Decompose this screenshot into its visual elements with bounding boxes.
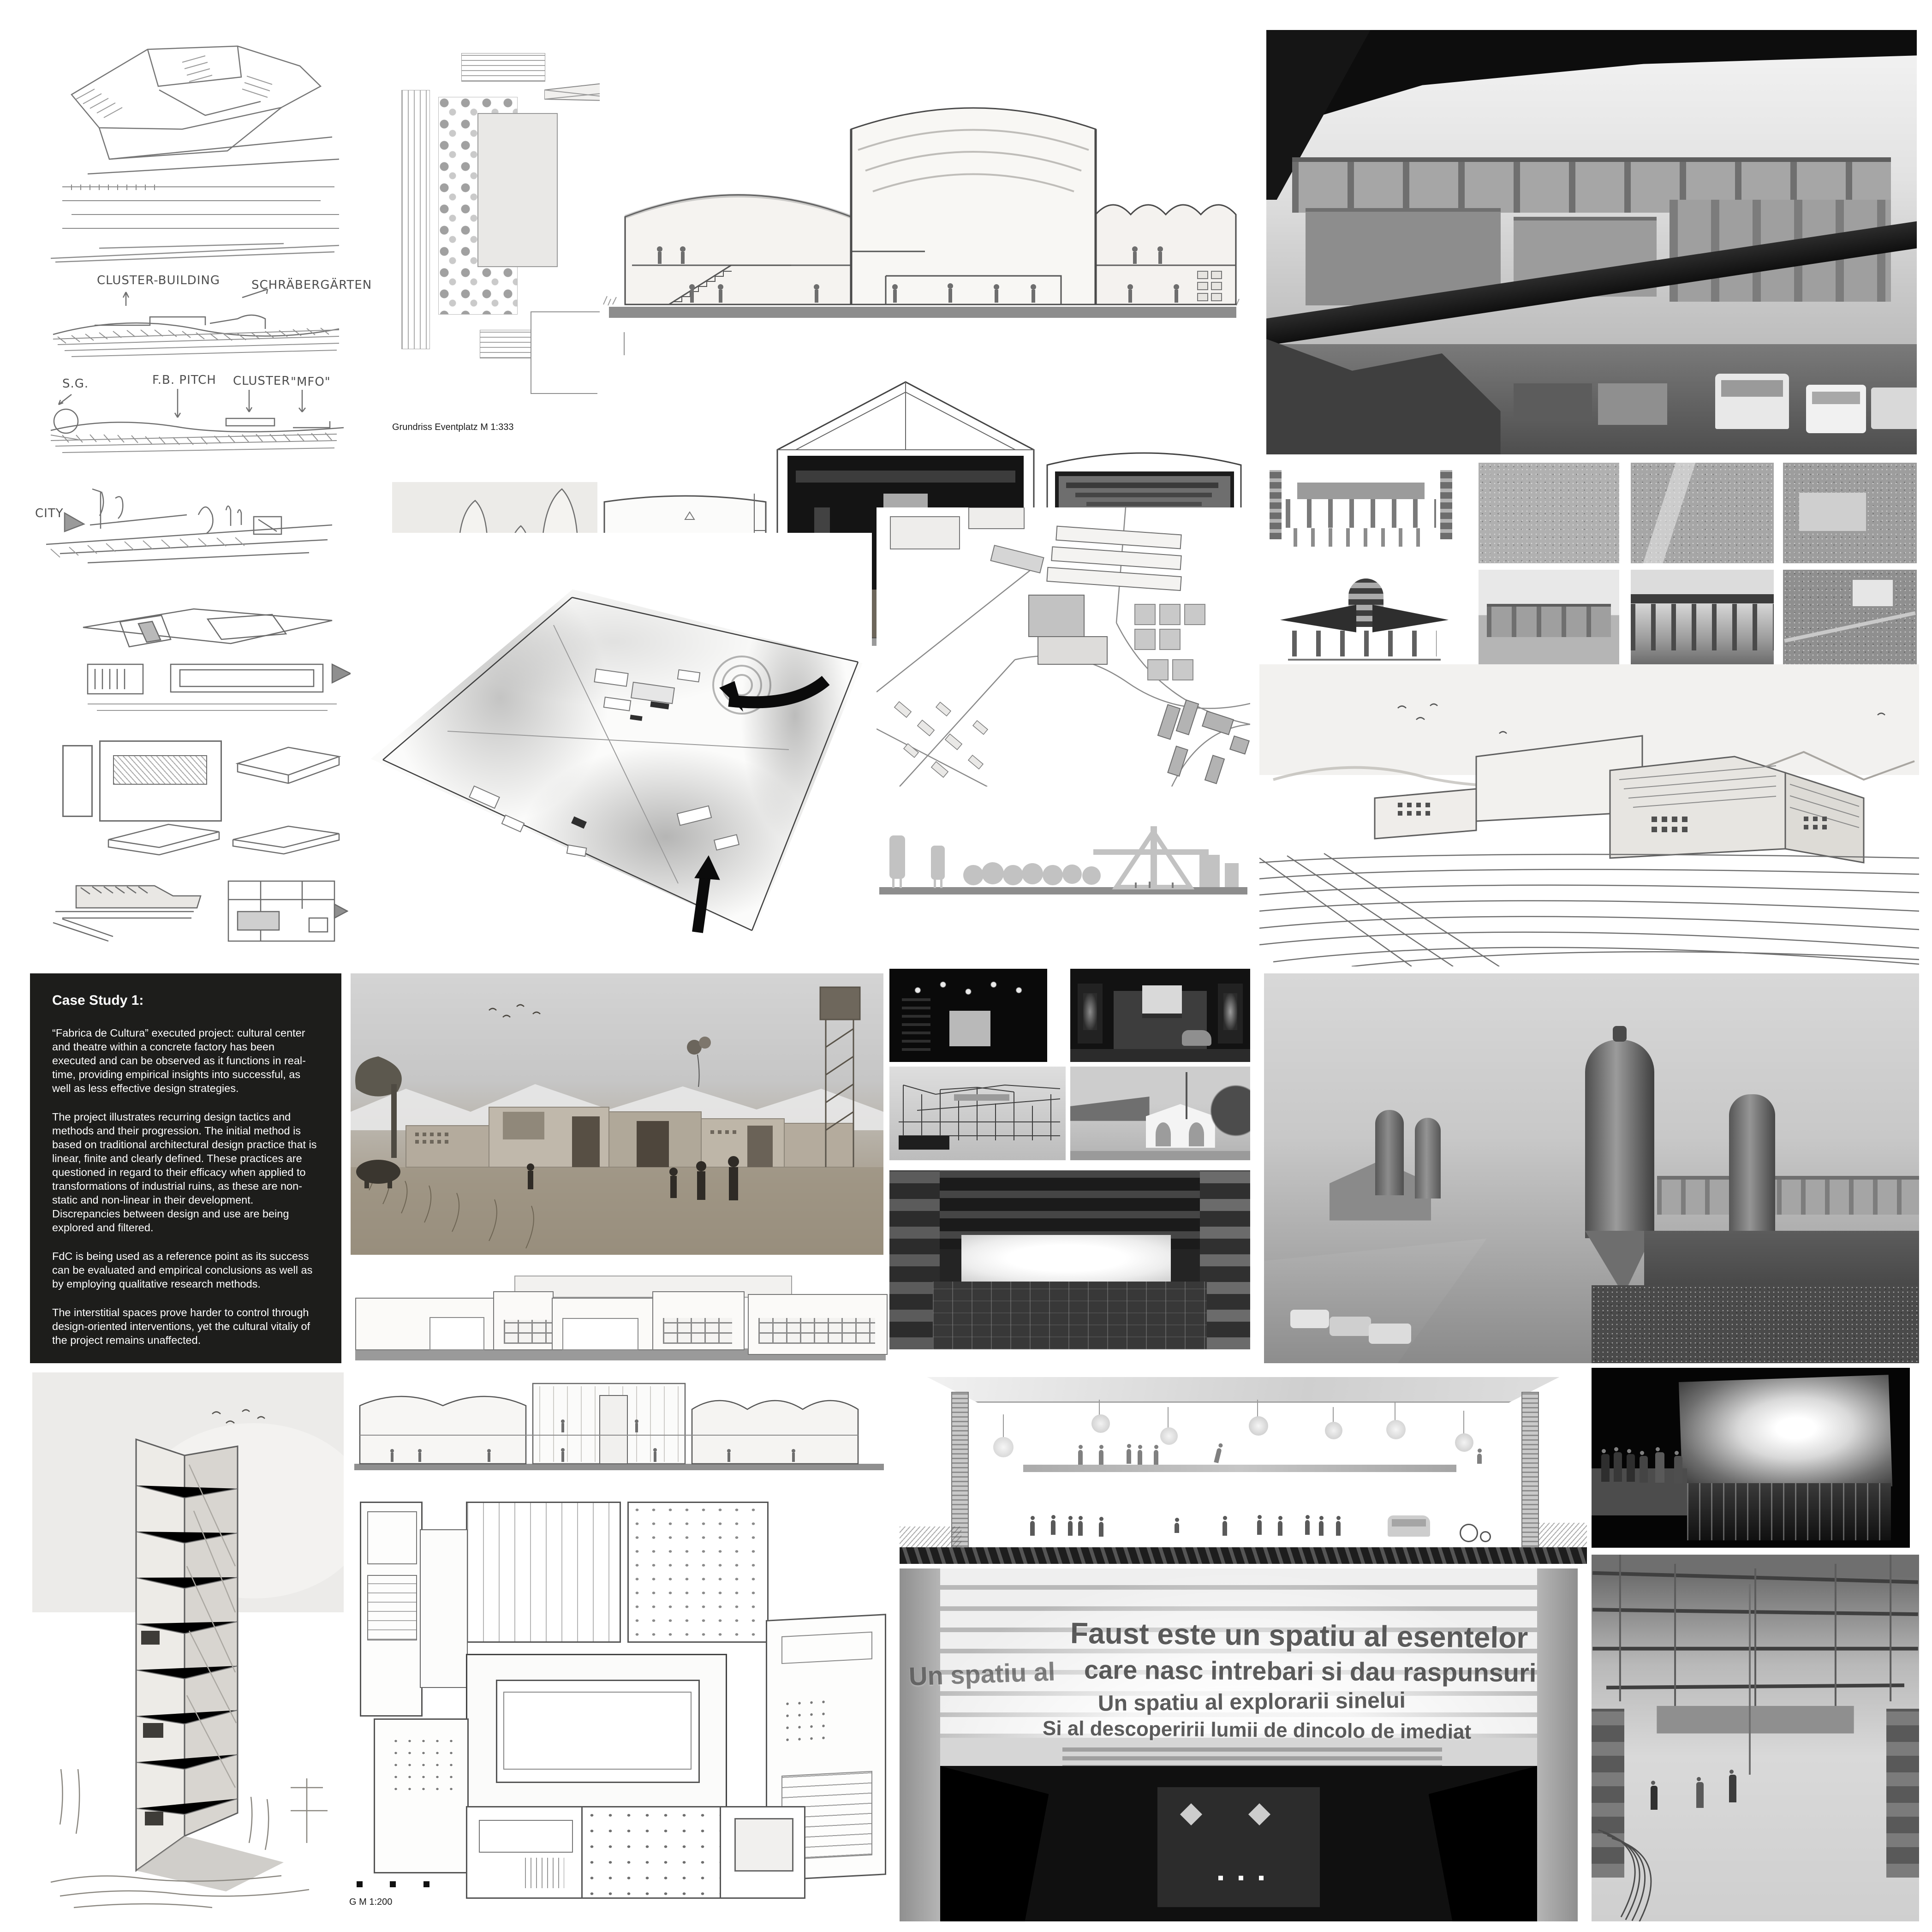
fabrica-elevation-drawing — [355, 1276, 886, 1363]
big-silo — [1585, 1040, 1654, 1238]
van — [1806, 385, 1866, 433]
sketch-plan-hatched — [44, 727, 348, 856]
truck — [1871, 388, 1917, 429]
fabrica-render-collage — [351, 973, 883, 1255]
car-3 — [1369, 1324, 1411, 1344]
sketch-cluster-building: CLUSTER-BUILDING SCHRÄBERGÄRTEN — [44, 270, 346, 371]
aerial-photo-junction — [1783, 570, 1917, 671]
garden-plan-drawing — [392, 53, 632, 406]
bridge-photo-small — [1631, 570, 1774, 671]
flow-arrow-icon — [695, 856, 720, 932]
burning-screen — [1679, 1375, 1893, 1494]
presentation-board: CLUSTER-BUILDING SCHRÄBERGÄRTEN S.G. F.B… — [0, 0, 1932, 1932]
case-study-paragraph-1: “Fabrica de Cultura” executed project: c… — [52, 1026, 319, 1095]
sketch-city-section: CITY — [32, 471, 346, 586]
ruin-factory-photo — [1266, 30, 1917, 454]
case-study-paragraph-4: The interstitial spaces prove harder to … — [52, 1306, 319, 1347]
garden-plan-caption: Grundriss Eventplatz M 1:333 — [392, 422, 513, 433]
sketch-ground-lines — [44, 240, 346, 265]
tent-photo — [1070, 1067, 1250, 1160]
stage-text-line-3: Un spatiu al explorarii sinelui — [1098, 1688, 1406, 1717]
car-render — [1388, 1515, 1430, 1537]
industrial-silhouette-elevation — [877, 819, 1250, 902]
tower-sketch — [32, 1372, 344, 1921]
faust-stage-photo: Faust este un spatiu al esentelor Un spa… — [900, 1568, 1578, 1921]
stage-portal — [1157, 1787, 1320, 1907]
stage-text-line-1: Faust este un spatiu al esentelor — [1070, 1616, 1528, 1655]
scale-bar — [357, 1881, 463, 1888]
landscape-factory-sketch — [1259, 664, 1919, 966]
factory-photo-small — [1479, 570, 1619, 671]
stage-text-line-2: care nasc intrebari si dau raspunsuri — [1084, 1655, 1537, 1688]
stage-text-line-4: Si al descoperirii lumii de dincolo de i… — [1043, 1717, 1472, 1744]
sketch-axon-plan — [55, 595, 351, 720]
stage-text-line-2-prefix: Un spatiu al — [908, 1656, 1055, 1691]
silo-plant-photo — [1264, 973, 1919, 1363]
grandstand-photo — [889, 1067, 1066, 1160]
garden-pool — [477, 113, 558, 267]
theatre-interior-photo-1 — [889, 969, 1047, 1062]
bus — [1715, 374, 1789, 429]
ground-floor-plan — [360, 1502, 890, 1896]
plan-courtyard — [466, 1654, 727, 1809]
case-study-text-panel: Case Study 1: “Fabrica de Cultura” execu… — [30, 973, 341, 1363]
car-2 — [1330, 1317, 1371, 1336]
floor-plan-caption: G M 1:200 — [349, 1897, 392, 1908]
stage-eye-icon — [1180, 1803, 1202, 1825]
watercolor-site-map — [355, 533, 872, 966]
empty-hall-photo — [1592, 1555, 1919, 1921]
stage-eye-icon — [1248, 1803, 1270, 1825]
case-study-paragraph-3: FdC is being used as a reference point a… — [52, 1249, 319, 1291]
tent — [1146, 1104, 1215, 1148]
aerial-photo-city-1 — [1479, 463, 1619, 563]
suspended-platform — [1023, 1465, 1456, 1472]
small-silo-1 — [1375, 1110, 1404, 1195]
small-silo-2 — [1415, 1118, 1441, 1199]
theatre-stage-photo-rhino — [1070, 969, 1250, 1062]
flow-arrow-icon — [720, 680, 826, 711]
hall-opening-photo — [889, 1170, 1250, 1349]
case-study-paragraph-2: The project illustrates recurring design… — [52, 1110, 319, 1234]
silo-2 — [1729, 1094, 1775, 1237]
aerial-photo-industrial — [1783, 463, 1917, 563]
water-performance-photo — [1592, 1368, 1910, 1548]
aerial-photo-city-2 — [1631, 463, 1774, 563]
rhino-silhouette — [1182, 1030, 1211, 1046]
bicycle-icon — [1460, 1519, 1492, 1539]
sketch-section-plan-pair — [44, 867, 348, 955]
column-right — [1521, 1392, 1539, 1550]
city-map-drawing — [877, 507, 1250, 787]
sketch-mass-perspective — [44, 21, 346, 238]
car-1 — [1290, 1310, 1329, 1328]
hanging-platform-render — [900, 1377, 1587, 1564]
case-study-title: Case Study 1: — [52, 993, 319, 1008]
field-lines — [1259, 853, 1919, 966]
sketch-pitch-section: S.G. F.B. PITCH CLUSTER "MFO" — [44, 376, 346, 466]
bottom-section-drawing — [351, 1377, 888, 1476]
pier-structure-render — [1262, 464, 1460, 567]
long-section-drawing — [600, 55, 1246, 332]
